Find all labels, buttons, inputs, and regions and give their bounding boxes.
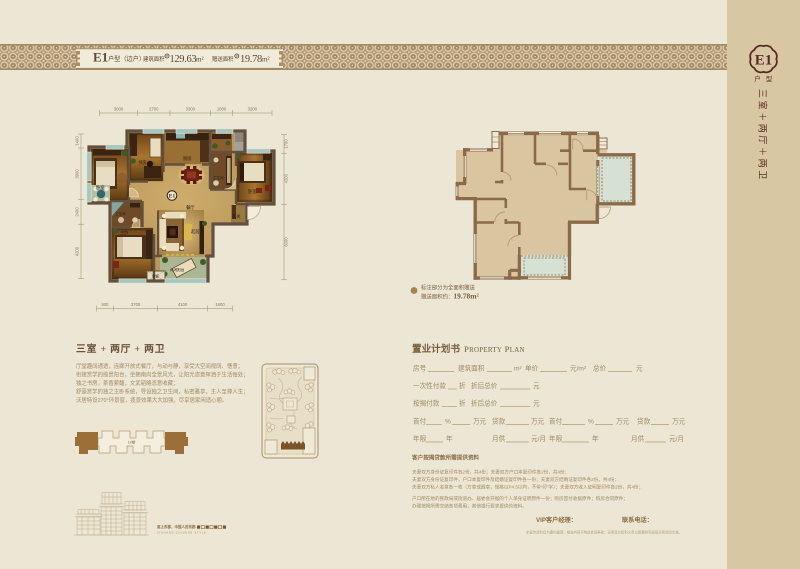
svg-text:2700: 2700 bbox=[149, 107, 159, 112]
svg-text:夫妻双方身份证复印件，户口本复印件及结婚证复印件各一份；夫妻: 夫妻双方身份证复印件，户口本复印件及结婚证复印件各一份；夫妻双方结婚证复印件各2… bbox=[412, 476, 619, 483]
svg-text:年: 年 bbox=[592, 434, 599, 443]
svg-text:4200: 4200 bbox=[75, 246, 80, 256]
svg-text:起居室: 起居室 bbox=[191, 228, 205, 235]
svg-text:按揭付款: 按揭付款 bbox=[413, 399, 440, 408]
svg-text:置业计划书: 置业计划书 bbox=[412, 343, 460, 355]
svg-text:厨房: 厨房 bbox=[183, 155, 192, 162]
svg-text:标注部分为全面积赠送: 标注部分为全面积赠送 bbox=[421, 284, 476, 292]
svg-text:元/月: 元/月 bbox=[531, 435, 546, 443]
svg-text:赠送面积: 赠送面积 bbox=[212, 55, 234, 63]
svg-text:万元: 万元 bbox=[531, 418, 545, 426]
svg-text:2400: 2400 bbox=[75, 207, 80, 217]
svg-text:舒豪赏学的独之主卧系统，导设独之卫生间，私密雅享，主人至尊人: 舒豪赏学的独之主卧系统，导设独之卫生间，私密雅享，主人至尊人生； bbox=[76, 388, 249, 396]
svg-text:年限: 年限 bbox=[549, 434, 563, 443]
svg-text:首付: 首付 bbox=[413, 417, 427, 426]
svg-text:厅堂趣阔通透，连廊开放式餐厅，与动与静，享受大空间视阔、惬意: 厅堂趣阔通透，连廊开放式餐厅，与动与静，享受大空间视阔、惬意； bbox=[76, 362, 243, 370]
svg-text:E1: E1 bbox=[169, 194, 176, 200]
svg-text:建筑面积: 建筑面积 bbox=[143, 55, 165, 63]
svg-text:卧室: 卧室 bbox=[248, 188, 257, 195]
svg-text:型: 型 bbox=[766, 74, 773, 83]
svg-text:元: 元 bbox=[533, 400, 540, 408]
svg-text:月供: 月供 bbox=[492, 434, 506, 443]
svg-text:900: 900 bbox=[102, 302, 110, 307]
svg-text:户口所在地的民政局或街道办、居委会开据的个人单身证明原件一份: 户口所在地的民政局或街道办、居委会开据的个人单身证明原件一份；购房首付收据原件；… bbox=[412, 495, 628, 502]
svg-text:元/月: 元/月 bbox=[669, 435, 684, 443]
svg-text:折后总价: 折后总价 bbox=[471, 381, 498, 390]
svg-text:首付: 首付 bbox=[549, 417, 563, 426]
svg-text:1700: 1700 bbox=[284, 139, 289, 149]
svg-text:1#楼: 1#楼 bbox=[128, 440, 136, 445]
svg-text:XISHANG CHINESE STYLE: XISHANG CHINESE STYLE bbox=[157, 531, 207, 535]
svg-text:房号: 房号 bbox=[413, 364, 427, 373]
svg-text:客户按揭贷款所需提供资料: 客户按揭贷款所需提供资料 bbox=[411, 454, 480, 462]
svg-text:4200: 4200 bbox=[284, 173, 289, 183]
svg-text:E1: E1 bbox=[93, 50, 108, 65]
svg-text:休闲阳台: 休闲阳台 bbox=[170, 267, 185, 272]
svg-text:约: 约 bbox=[235, 54, 239, 59]
svg-text:独之书房，茶香萦馥，文武韬略恣意收藏；: 独之书房，茶香萦馥，文武韬略恣意收藏； bbox=[76, 379, 178, 387]
svg-text:129.63: 129.63 bbox=[170, 54, 197, 65]
svg-text:书房: 书房 bbox=[138, 159, 147, 166]
svg-text:卫生间: 卫生间 bbox=[213, 175, 224, 180]
svg-text:3200: 3200 bbox=[248, 107, 258, 112]
svg-text:元/m²: 元/m² bbox=[570, 365, 587, 373]
svg-text:3000: 3000 bbox=[114, 107, 124, 112]
svg-text:年: 年 bbox=[446, 434, 453, 443]
svg-text:贷款: 贷款 bbox=[637, 417, 651, 426]
svg-text:贷款: 贷款 bbox=[492, 417, 506, 426]
svg-text:VIP客户经理：: VIP客户经理： bbox=[536, 516, 577, 524]
svg-text:衔接赏学的揽景阳台，坐拥南向全景风光，让阳光恣意挥洒于生活每: 衔接赏学的揽景阳台，坐拥南向全景风光，让阳光恣意挥洒于生活每处； bbox=[76, 371, 249, 379]
svg-text:办理按揭所需交纳各项费用，其他银行要求提供的资料。: 办理按揭所需交纳各项费用，其他银行要求提供的资料。 bbox=[412, 502, 527, 509]
svg-text:4100: 4100 bbox=[178, 302, 188, 307]
svg-text:万元: 万元 bbox=[672, 418, 686, 426]
svg-text:m²: m² bbox=[196, 55, 204, 63]
svg-text:卧室: 卧室 bbox=[96, 184, 105, 191]
svg-text:%: % bbox=[588, 419, 594, 426]
svg-text:总价: 总价 bbox=[593, 364, 607, 373]
svg-text:1400: 1400 bbox=[75, 136, 80, 146]
svg-text:主卧: 主卧 bbox=[120, 229, 129, 236]
svg-text:席上东郡，中国人的东郡: 席上东郡，中国人的东郡 bbox=[156, 524, 196, 529]
svg-text:户型（边户）: 户型（边户） bbox=[108, 55, 145, 63]
svg-text:3300: 3300 bbox=[186, 107, 196, 112]
svg-text:折: 折 bbox=[459, 399, 466, 408]
svg-text:三室 + 两厅 + 两卫: 三室 + 两厅 + 两卫 bbox=[76, 342, 165, 355]
svg-text:折: 折 bbox=[459, 381, 466, 390]
svg-text:万元: 万元 bbox=[616, 418, 630, 426]
svg-text:夫妻双方私人名章各一枚（方章或圆章，规格以P4.5以内，不带: 夫妻双方私人名章各一枚（方章或圆章，规格以P4.5以内，不带“印”字）；夫妻双方… bbox=[412, 483, 643, 490]
svg-text:6000: 6000 bbox=[284, 237, 289, 247]
svg-text:户: 户 bbox=[754, 74, 761, 83]
svg-text:元: 元 bbox=[533, 382, 540, 390]
svg-text:19.78: 19.78 bbox=[240, 54, 262, 65]
svg-text:折后总价: 折后总价 bbox=[471, 399, 498, 408]
svg-text:一次性付款: 一次性付款 bbox=[413, 381, 446, 390]
svg-text:本宣传资料仅为要约邀请，相关内容不构成合同条款；买卖双方权利: 本宣传资料仅为要约邀请，相关内容不构成合同条款；买卖双方权利义务以签署的商品房买… bbox=[526, 530, 682, 535]
svg-text:三室＋两厅＋两卫: 三室＋两厅＋两卫 bbox=[758, 89, 769, 182]
svg-text:夫妻双方身份证复印件各2份，共4份；夫妻双方户口本复印件各2: 夫妻双方身份证复印件各2份，共4份；夫妻双方户口本复印件各2份，共4份； bbox=[412, 469, 569, 476]
svg-text:沃居特设270°环景窗，揽景效果大大加强，尽享居家闲适心憩。: 沃居特设270°环景窗，揽景效果大大加强，尽享居家闲适心憩。 bbox=[76, 396, 227, 404]
svg-text:3900: 3900 bbox=[75, 169, 80, 179]
svg-text:m²: m² bbox=[514, 366, 522, 373]
svg-text:建筑面积: 建筑面积 bbox=[458, 364, 485, 373]
svg-text:玄关: 玄关 bbox=[232, 213, 241, 220]
svg-text:1800: 1800 bbox=[217, 107, 227, 112]
svg-text:空调: 空调 bbox=[152, 274, 159, 279]
svg-text:万元: 万元 bbox=[473, 418, 487, 426]
svg-text:年限: 年限 bbox=[413, 434, 427, 443]
svg-text:月供: 月供 bbox=[631, 434, 645, 443]
svg-text:1600: 1600 bbox=[215, 302, 225, 307]
svg-text:E1: E1 bbox=[755, 53, 773, 69]
svg-text:餐厅: 餐厅 bbox=[186, 204, 195, 211]
svg-text:%: % bbox=[445, 419, 451, 426]
svg-text:元: 元 bbox=[636, 365, 643, 373]
svg-text:卫生间: 卫生间 bbox=[115, 211, 126, 216]
svg-text:m²: m² bbox=[262, 55, 270, 63]
svg-text:联系电话：: 联系电话： bbox=[622, 516, 653, 524]
svg-text:3700: 3700 bbox=[131, 302, 141, 307]
svg-text:单价: 单价 bbox=[525, 364, 539, 373]
